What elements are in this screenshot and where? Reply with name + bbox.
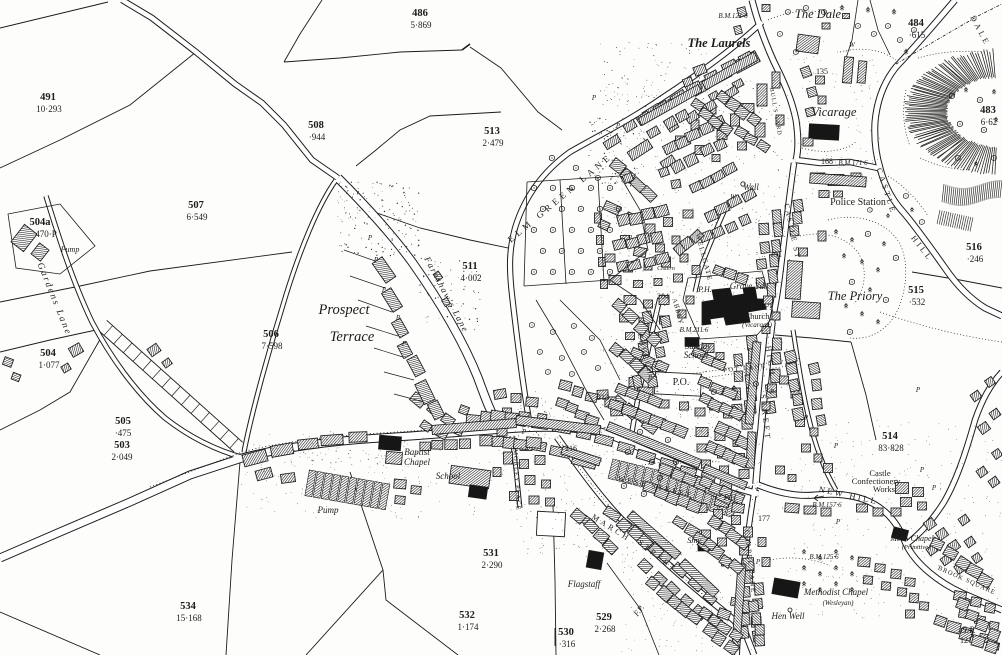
svg-text:P: P <box>367 234 373 242</box>
svg-text:2·268: 2·268 <box>595 624 616 634</box>
svg-text:483: 483 <box>980 105 996 116</box>
svg-text:516: 516 <box>966 242 982 253</box>
svg-text:Methodist Chapel: Methodist Chapel <box>803 587 869 597</box>
svg-text:P: P <box>931 484 937 492</box>
svg-text:School: School <box>684 350 709 360</box>
svg-text:529: 529 <box>596 612 612 623</box>
svg-text:Works: Works <box>873 484 895 494</box>
svg-text:Hen Well: Hen Well <box>771 611 805 621</box>
svg-text:508: 508 <box>308 120 324 131</box>
svg-text:121: 121 <box>960 636 972 645</box>
svg-text:505: 505 <box>115 416 131 427</box>
svg-text:486: 486 <box>412 8 428 19</box>
svg-text:Pump: Pump <box>60 245 80 254</box>
svg-text:Flagstaff: Flagstaff <box>567 579 602 589</box>
svg-text:The Laurels: The Laurels <box>688 36 751 50</box>
svg-text:Terrace: Terrace <box>330 329 375 345</box>
svg-text:503: 503 <box>114 440 130 451</box>
svg-text:(Wesleyan): (Wesleyan) <box>823 599 855 607</box>
svg-text:The Dale: The Dale <box>795 7 842 21</box>
svg-text:B.M.157·6: B.M.157·6 <box>812 501 842 509</box>
svg-text:10·293: 10·293 <box>36 104 62 114</box>
svg-text:P.O.: P.O. <box>673 377 690 388</box>
svg-text:Chapel: Chapel <box>404 457 430 467</box>
svg-text:P: P <box>919 466 925 474</box>
svg-text:P: P <box>591 94 597 102</box>
svg-text:P: P <box>755 558 761 566</box>
svg-text:P: P <box>835 518 841 526</box>
svg-text:470·P: 470·P <box>35 229 57 239</box>
svg-text:15·168: 15·168 <box>176 613 202 623</box>
svg-text:2·049: 2·049 <box>112 452 133 462</box>
svg-text:Pump: Pump <box>317 505 339 515</box>
svg-text:2·479: 2·479 <box>483 138 504 148</box>
svg-text:·944: ·944 <box>309 132 326 142</box>
svg-text:P: P <box>627 234 633 242</box>
svg-text:1·077: 1·077 <box>39 360 60 370</box>
svg-text:B.M.125·6: B.M.125·6 <box>809 553 839 561</box>
svg-text:P: P <box>769 388 775 396</box>
svg-text:514: 514 <box>882 431 899 442</box>
svg-text:P: P <box>395 314 401 322</box>
svg-text:Prospect: Prospect <box>317 302 370 318</box>
svg-text:511: 511 <box>462 261 477 272</box>
svg-text:513: 513 <box>484 126 500 137</box>
svg-text:Well: Well <box>743 182 759 192</box>
svg-text:Baptist: Baptist <box>404 447 430 457</box>
svg-text:P: P <box>647 374 653 382</box>
svg-text:(Primitive): (Primitive) <box>902 544 931 551</box>
svg-text:P: P <box>521 428 527 436</box>
svg-text:School: School <box>436 471 461 481</box>
svg-text:6·62: 6·62 <box>981 117 998 127</box>
svg-text:Church: Church <box>744 311 770 321</box>
svg-text:B.M.211·6: B.M.211·6 <box>680 326 709 334</box>
svg-text:·532: ·532 <box>909 297 926 307</box>
svg-text:P: P <box>381 286 387 294</box>
svg-text:(Vicarage): (Vicarage) <box>742 321 772 329</box>
svg-text:530: 530 <box>558 627 574 638</box>
svg-text:2·290: 2·290 <box>482 560 503 570</box>
svg-text:504a: 504a <box>30 217 52 228</box>
svg-text:Smy.: Smy. <box>687 535 703 545</box>
svg-text:G.P.: G.P. <box>960 625 975 635</box>
svg-text:507: 507 <box>188 200 204 211</box>
svg-text:Cistern: Cistern <box>657 266 675 272</box>
svg-text:Meth. Chapel: Meth. Chapel <box>889 534 934 543</box>
svg-text:The Priory: The Priory <box>828 289 883 303</box>
svg-text:506: 506 <box>263 329 279 340</box>
svg-text:491: 491 <box>40 92 56 103</box>
svg-text:504: 504 <box>40 348 57 359</box>
svg-text:B.M.121·6: B.M.121·6 <box>718 12 748 20</box>
svg-text:135: 135 <box>816 67 828 76</box>
svg-text:534: 534 <box>180 601 197 612</box>
svg-text:515: 515 <box>908 285 924 296</box>
svg-text:·246: ·246 <box>967 254 984 264</box>
svg-text:484: 484 <box>908 18 925 29</box>
svg-text:204: 204 <box>657 292 669 301</box>
svg-text:Grave Yd.: Grave Yd. <box>730 281 767 291</box>
svg-text:P: P <box>833 442 839 450</box>
svg-text:6·549: 6·549 <box>187 212 208 222</box>
svg-text:P: P <box>615 122 621 130</box>
svg-text:177: 177 <box>758 514 770 523</box>
svg-text:531: 531 <box>483 548 499 559</box>
svg-text:83·828: 83·828 <box>878 443 904 453</box>
svg-text:7·598: 7·598 <box>262 341 283 351</box>
svg-text:·475: ·475 <box>115 428 132 438</box>
svg-text:B.M.171·6: B.M.171·6 <box>838 159 868 167</box>
svg-text:P.H.: P.H. <box>697 285 712 294</box>
svg-text:·615: ·615 <box>909 30 926 40</box>
svg-text:P: P <box>915 386 921 394</box>
svg-text:Vicarage: Vicarage <box>812 105 857 119</box>
svg-text:P: P <box>373 256 379 264</box>
svg-text:P: P <box>401 340 407 348</box>
svg-text:P.H.: P.H. <box>723 492 739 502</box>
svg-text:P: P <box>803 414 809 422</box>
svg-text:4·002: 4·002 <box>461 273 482 283</box>
svg-text:Police Station: Police Station <box>830 197 886 208</box>
svg-text:1·174: 1·174 <box>458 622 479 632</box>
svg-text:216: 216 <box>565 444 577 453</box>
svg-text:532: 532 <box>459 610 475 621</box>
svg-text:213: 213 <box>597 393 609 402</box>
svg-text:5·869: 5·869 <box>411 20 432 30</box>
svg-text:·316: ·316 <box>559 639 576 649</box>
svg-text:191: 191 <box>770 250 782 259</box>
svg-text:168: 168 <box>821 157 833 166</box>
